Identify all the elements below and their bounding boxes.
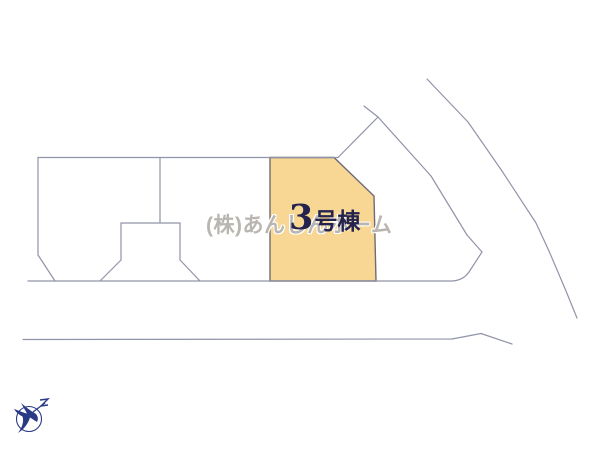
compass-north-glyph <box>40 399 48 406</box>
compass-north-icon <box>14 399 48 433</box>
driveway-notch-right <box>180 223 200 281</box>
left-lot-west-boundary <box>38 158 55 282</box>
road-east-edge <box>427 79 577 318</box>
boundary-stub <box>364 106 378 117</box>
right-lot-northwest-edge <box>338 117 378 158</box>
road-west-edge <box>378 117 482 252</box>
lot-label-number: 3 <box>289 200 313 235</box>
lot-label: 3 号棟 <box>289 200 360 235</box>
lower-road-edge <box>23 334 512 345</box>
lot-label-suffix: 号棟 <box>314 210 360 233</box>
driveway-notch-left <box>100 223 121 281</box>
lot-bottom-boundary <box>28 252 482 281</box>
site-plan-canvas: (株)あんしんホーム 3 号棟 <box>0 0 600 449</box>
